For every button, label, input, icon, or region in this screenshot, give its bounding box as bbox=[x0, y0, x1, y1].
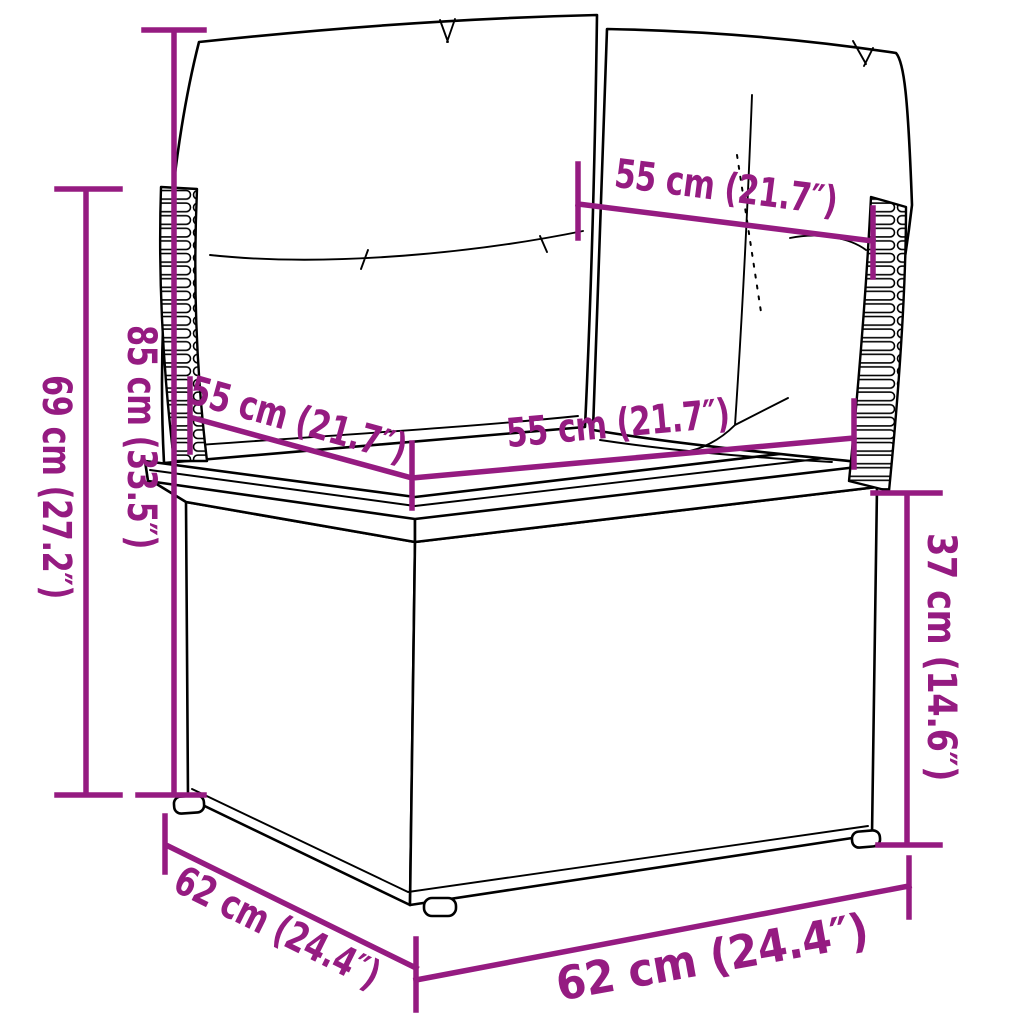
product-dimension-diagram: 69 cm (27.2″) 85 cm (33.5″) 37 cm (14.6″… bbox=[0, 0, 1024, 1024]
diagram-canvas: 69 cm (27.2″) 85 cm (33.5″) 37 cm (14.6″… bbox=[0, 0, 1024, 1024]
dimension-label: 85 cm (33.5″) bbox=[118, 325, 164, 549]
sofa-foot-corner bbox=[424, 898, 456, 916]
dimension-label: 37 cm (14.6″) bbox=[918, 533, 964, 781]
sofa-foot-left bbox=[173, 795, 204, 814]
wicker-base-right-face bbox=[410, 487, 877, 905]
dimension-label: 69 cm (27.2″) bbox=[33, 375, 79, 599]
